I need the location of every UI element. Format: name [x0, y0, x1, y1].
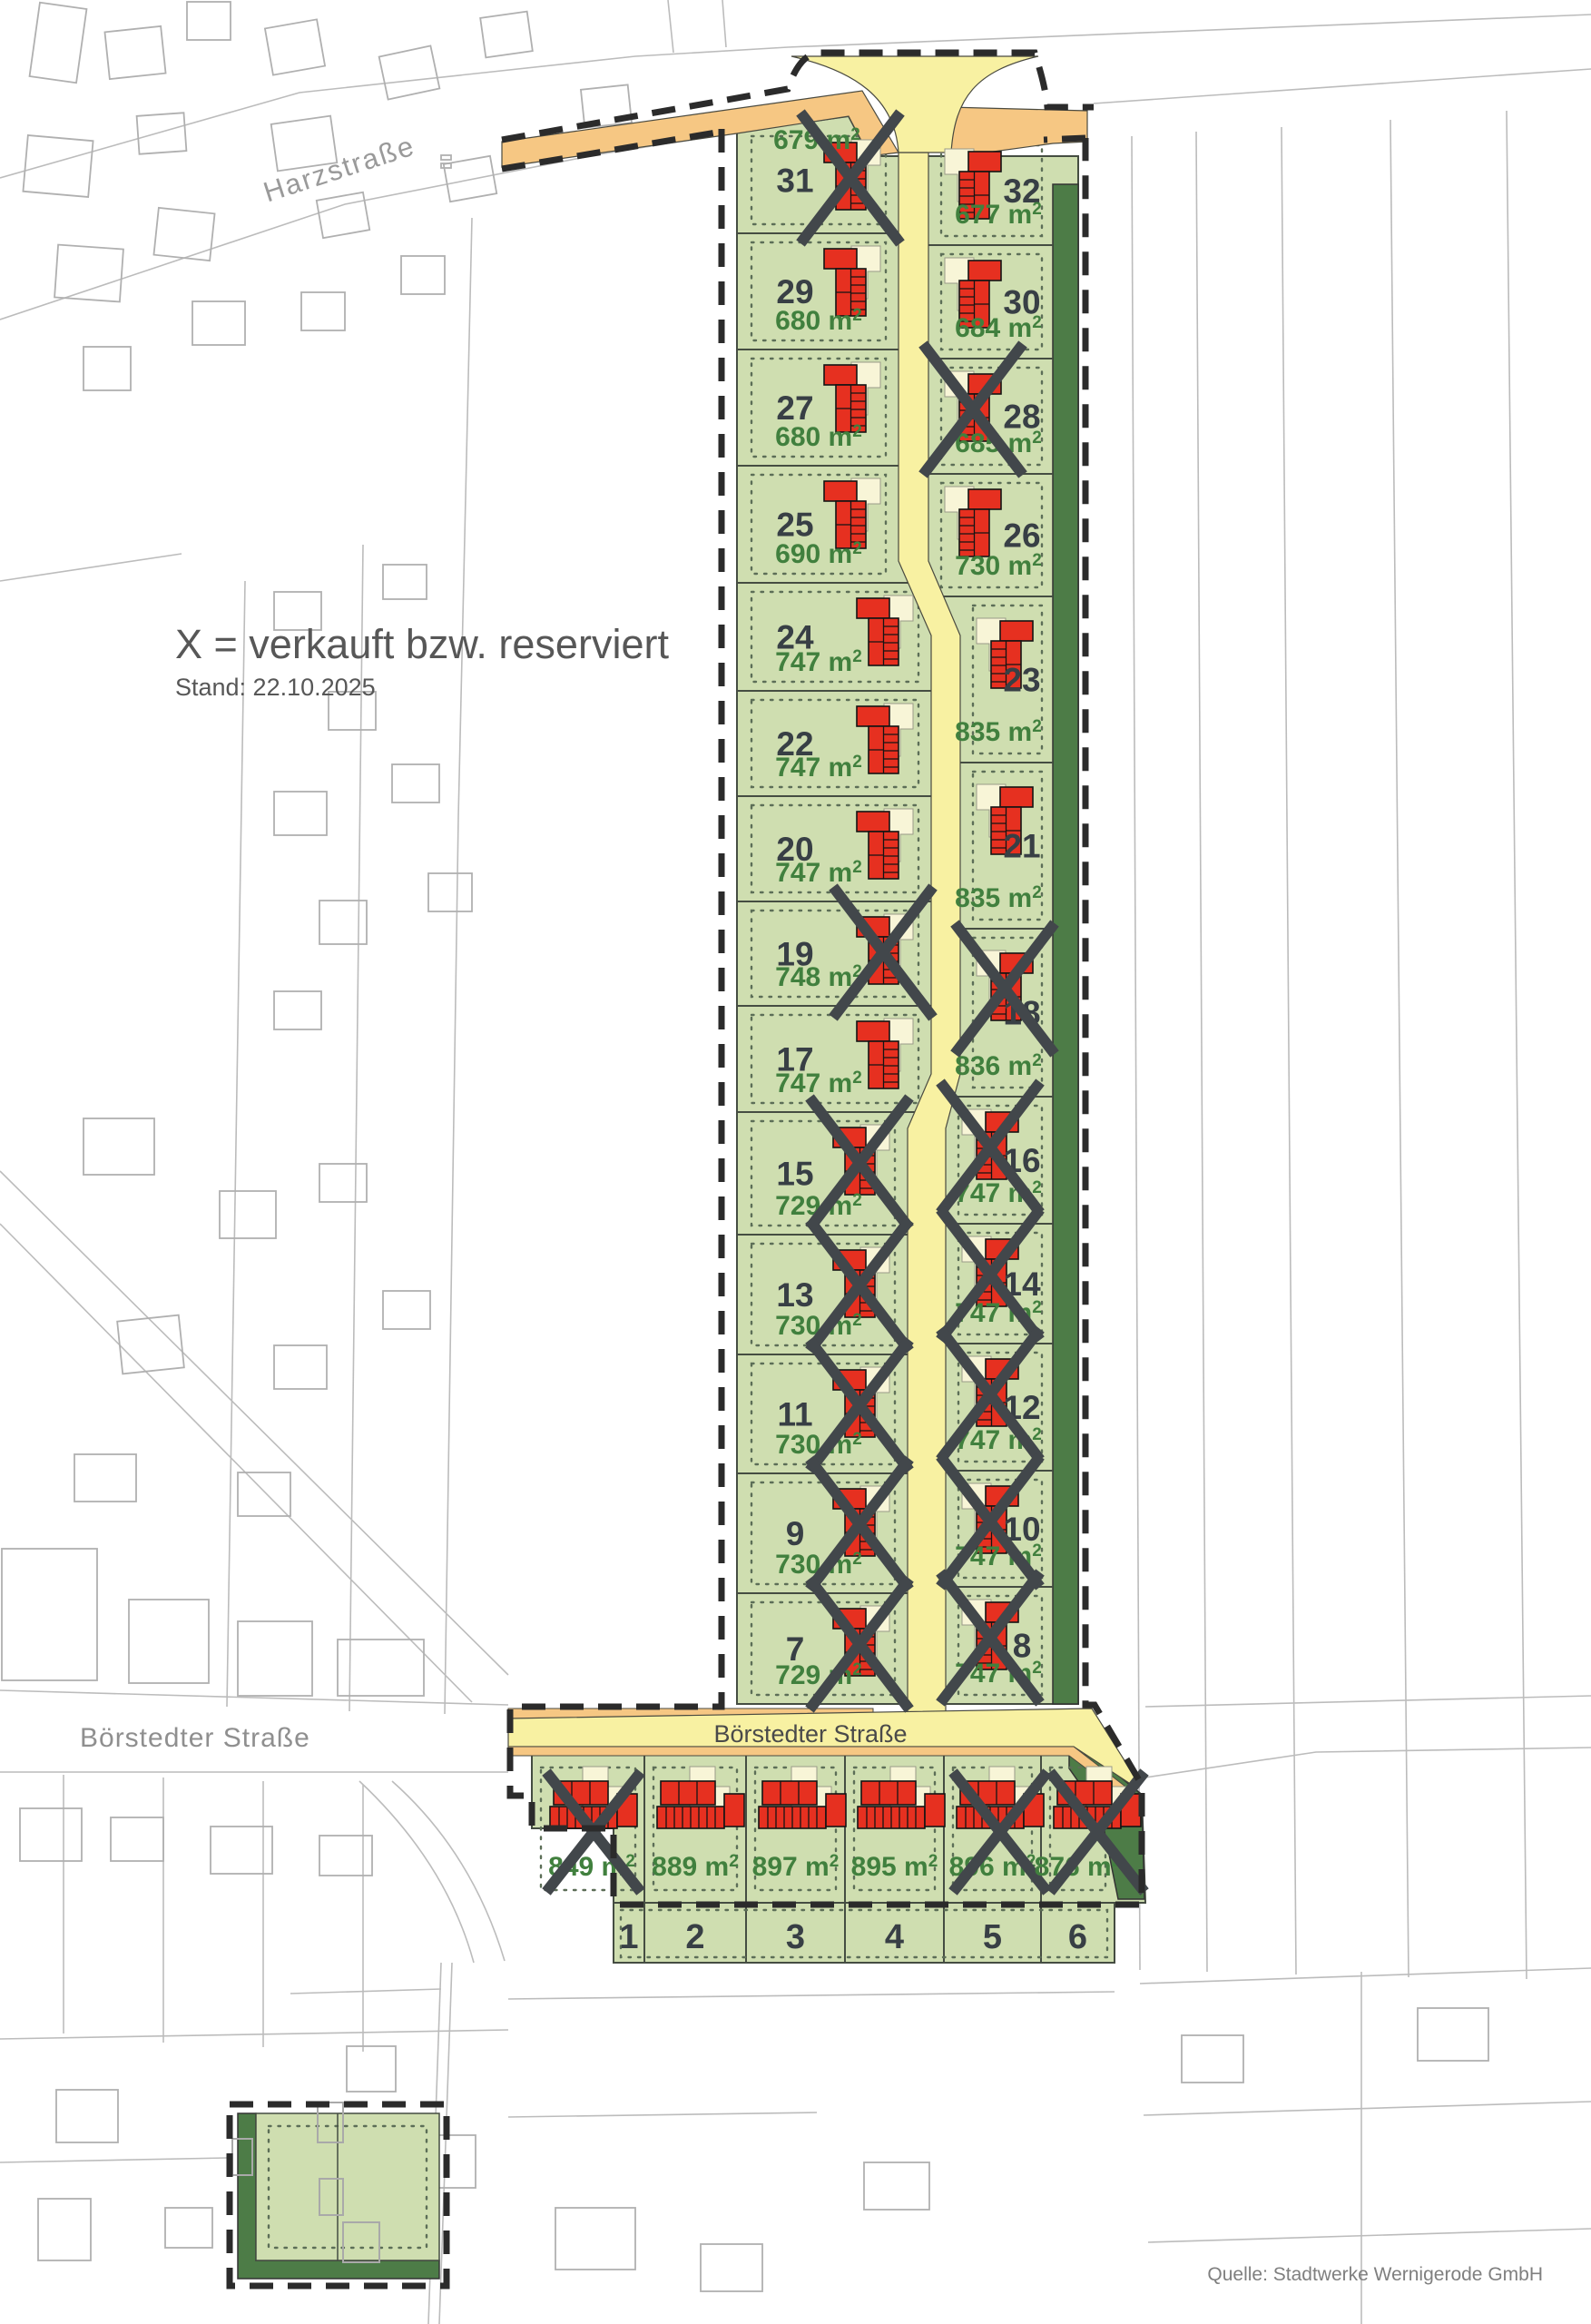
plot-area: 747 m2	[775, 858, 862, 888]
plot-number: 31	[776, 162, 813, 200]
plot-area: 835 m2	[955, 717, 1042, 747]
plot-number: 11	[777, 1396, 812, 1433]
plot-number: 21	[1003, 828, 1040, 865]
plot-area: 730 m2	[955, 551, 1042, 581]
plot-area: 836 m2	[955, 1051, 1042, 1081]
plot-number: 6	[1068, 1918, 1087, 1956]
detached-green-parcel	[232, 2102, 439, 2279]
plot-area: 889 m2	[652, 1852, 739, 1882]
plot-area: 747 m2	[775, 647, 862, 677]
street-label-boerstedter-west: Börstedter Straße	[80, 1723, 310, 1753]
plot-number: 25	[776, 507, 813, 544]
plot-number: 29	[776, 273, 813, 310]
green-reserve-strip	[1053, 184, 1078, 1704]
legend-title: X = verkauft bzw. reserviert	[175, 621, 669, 667]
plot-area: 895 m2	[851, 1852, 938, 1882]
source-credit: Quelle: Stadtwerke Wernigerode GmbH	[1207, 2264, 1543, 2285]
plot-number: 26	[1003, 517, 1040, 555]
street-label-boerstedter-new: Börstedter Straße	[713, 1720, 907, 1748]
plot-number: 1	[619, 1918, 638, 1956]
plot-area: 748 m2	[775, 962, 862, 992]
plot-number: 2	[685, 1918, 704, 1956]
plot-number: 15	[776, 1156, 813, 1193]
plot-number: 3	[786, 1918, 805, 1956]
plot-number: 4	[885, 1918, 904, 1956]
plot-number: 27	[776, 389, 813, 427]
plot-area: 835 m2	[955, 883, 1042, 913]
plot-area: 677 m2	[955, 200, 1042, 230]
plot-number: 23	[1003, 662, 1040, 699]
site-plan-page: 31679 m229680 m227680 m225690 m224747 m2…	[0, 0, 1591, 2324]
plot-area: 897 m2	[752, 1852, 840, 1882]
plot-area: 747 m2	[775, 1068, 862, 1098]
plot-area: 690 m2	[775, 539, 862, 569]
plot-number: 13	[776, 1276, 813, 1314]
plot-area: 747 m2	[775, 753, 862, 783]
site-plan-map: 31679 m229680 m227680 m225690 m224747 m2…	[0, 0, 1591, 2324]
plot-area: 680 m2	[775, 306, 862, 336]
plot-number: 5	[983, 1918, 1002, 1956]
plot-number: 9	[786, 1515, 805, 1552]
legend-date: Stand: 22.10.2025	[175, 674, 376, 701]
plot-area: 680 m2	[775, 422, 862, 452]
plot-area: 684 m2	[955, 313, 1042, 343]
